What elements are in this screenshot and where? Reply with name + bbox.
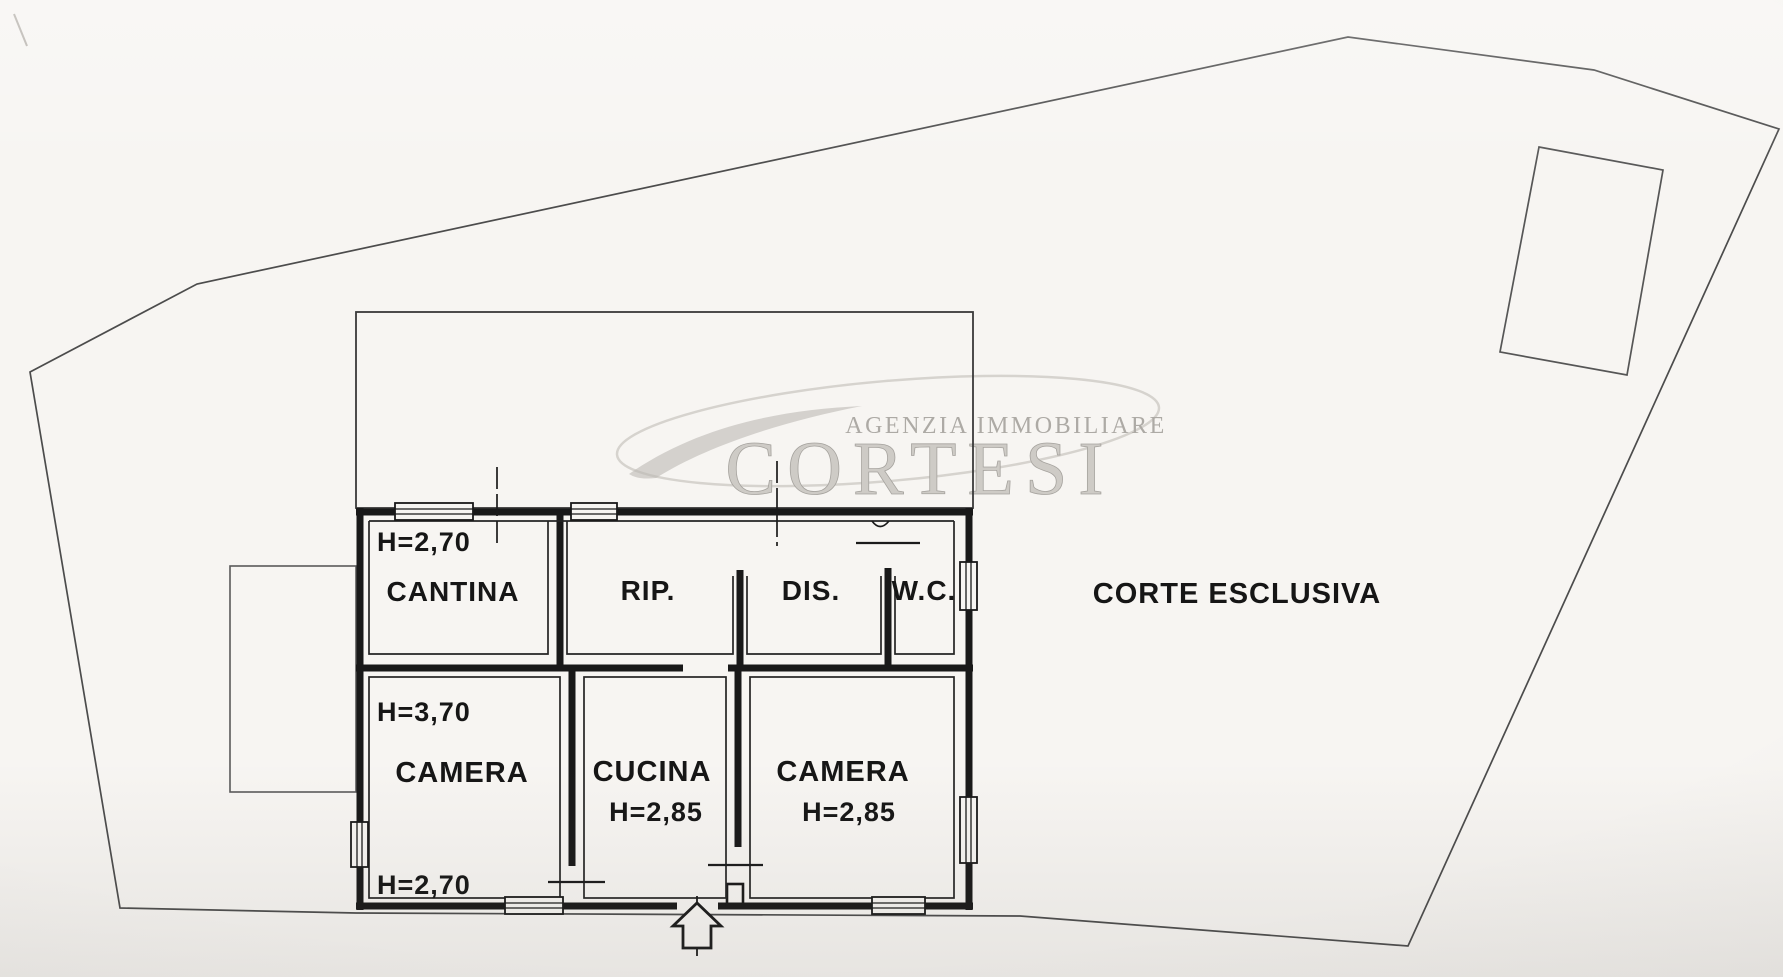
label-dis: DIS. [782,575,840,606]
window-south-camera2 [872,897,925,914]
label-cucina-height: H=2,85 [609,797,703,827]
label-camera2-height: H=2,85 [802,797,896,827]
watermark-brand-text: CORTESI [725,427,1114,511]
label-cucina: CUCINA [593,756,712,788]
label-corte-esclusiva: CORTE ESCLUSIVA [1093,578,1381,610]
label-camera1-height-min: H=2,70 [377,870,471,900]
floor-plan-photo: AGENZIA IMMOBILIARE CORTESI [0,0,1783,977]
label-rip: RIP. [621,575,676,606]
window-north-rip [571,503,617,520]
window-east-camera2 [960,797,977,863]
label-camera1: CAMERA [395,757,528,789]
label-camera2: CAMERA [776,756,909,788]
window-south-camera1 [505,897,563,914]
label-camera1-height-max: H=3,70 [377,697,471,727]
label-wc: W.C. [892,575,957,606]
window-north-cantina [395,503,473,520]
floor-plan-drawing: AGENZIA IMMOBILIARE CORTESI [0,0,1783,977]
window-west-camera1 [351,822,368,867]
window-east-wc [960,562,977,610]
label-cantina-height: H=2,70 [377,527,471,557]
label-cantina: CANTINA [387,576,520,607]
